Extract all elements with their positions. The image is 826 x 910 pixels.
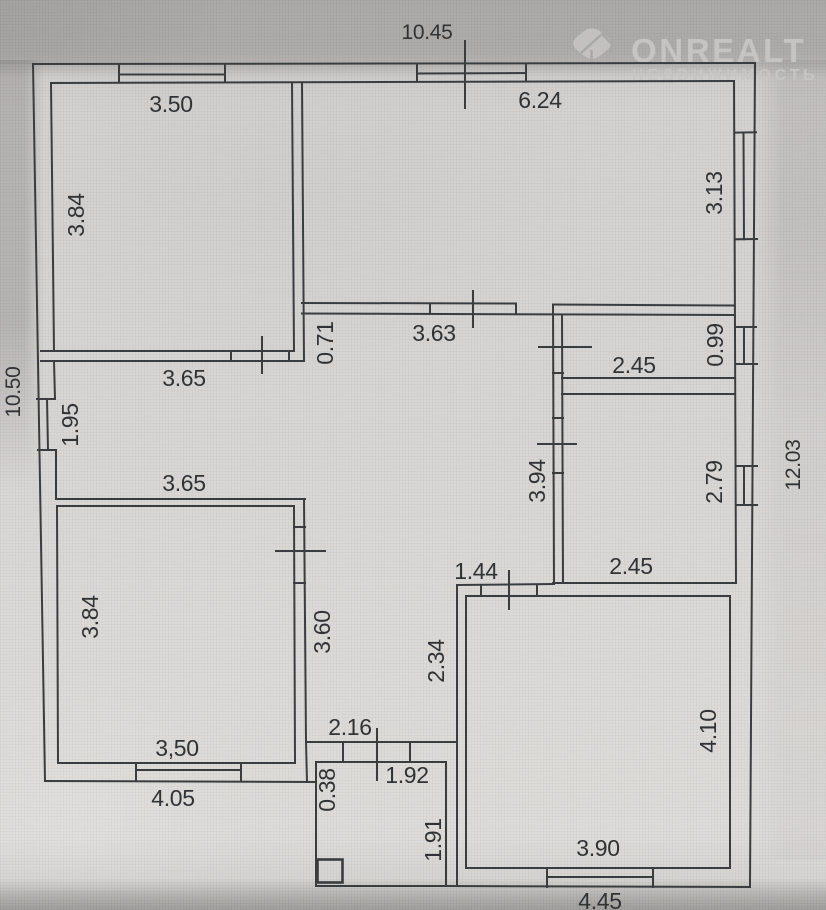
svg-text:3.63: 3.63	[412, 320, 456, 346]
svg-text:1.91: 1.91	[420, 818, 446, 862]
svg-text:3.50: 3.50	[149, 91, 193, 117]
svg-text:3.65: 3.65	[162, 470, 206, 496]
svg-text:0.71: 0.71	[312, 321, 338, 365]
svg-text:2.16: 2.16	[328, 714, 372, 740]
svg-text:1.92: 1.92	[385, 762, 429, 788]
svg-text:2.79: 2.79	[701, 460, 727, 504]
svg-text:2.45: 2.45	[609, 553, 653, 579]
svg-text:4.45: 4.45	[578, 888, 622, 910]
svg-text:3.13: 3.13	[701, 171, 727, 215]
svg-text:3.94: 3.94	[524, 459, 550, 503]
svg-text:0.38: 0.38	[314, 768, 340, 812]
svg-text:1.44: 1.44	[454, 558, 498, 584]
svg-text:0.99: 0.99	[702, 323, 728, 367]
svg-text:2.45: 2.45	[612, 352, 656, 378]
svg-text:3,50: 3,50	[155, 735, 199, 761]
svg-text:3.65: 3.65	[162, 365, 206, 391]
svg-text:3.84: 3.84	[77, 595, 103, 639]
svg-text:10.45: 10.45	[401, 21, 452, 44]
svg-text:4.10: 4.10	[695, 709, 721, 753]
svg-text:12.03: 12.03	[782, 439, 805, 490]
svg-text:10.50: 10.50	[2, 366, 25, 417]
svg-text:3.90: 3.90	[576, 835, 620, 861]
svg-text:3.60: 3.60	[309, 610, 335, 654]
svg-text:4.05: 4.05	[151, 785, 195, 811]
svg-text:1.95: 1.95	[57, 403, 83, 447]
svg-text:6.24: 6.24	[518, 87, 562, 113]
svg-text:2.34: 2.34	[423, 639, 449, 683]
svg-text:3.84: 3.84	[63, 193, 89, 237]
